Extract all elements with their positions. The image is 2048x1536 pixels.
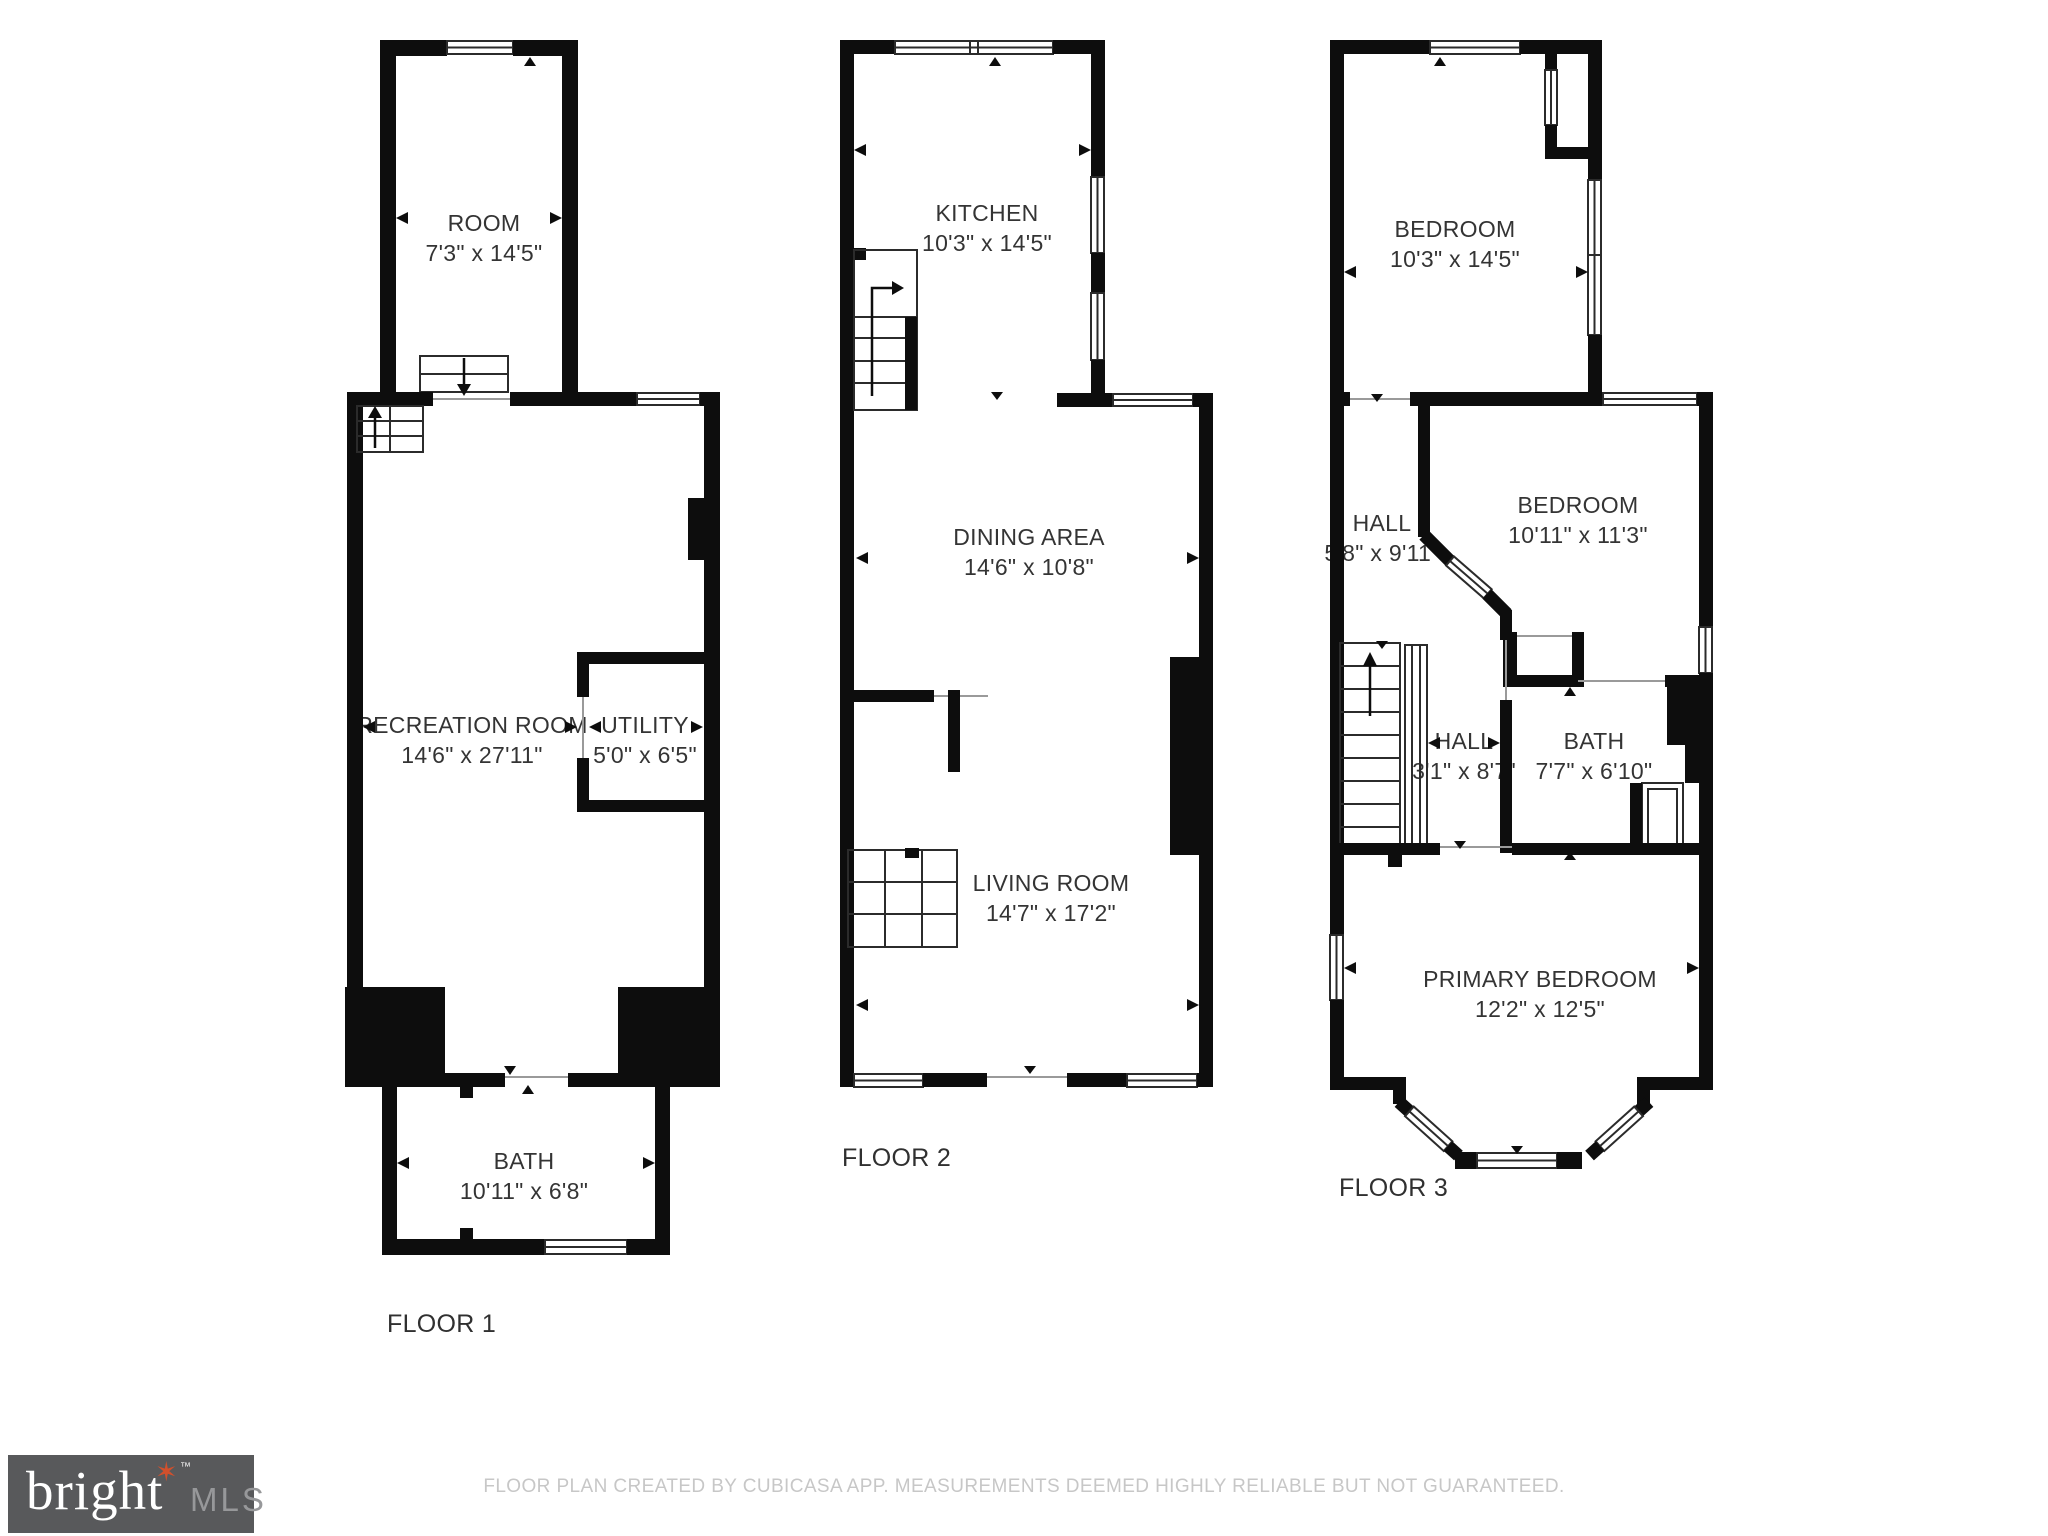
bright-mls-logo: bright ✶ ™ MLS (8, 1455, 254, 1533)
window (1091, 293, 1104, 360)
stairs-icon (420, 356, 508, 396)
logo-inner: bright ✶ ™ MLS (8, 1455, 254, 1533)
window (1127, 1074, 1197, 1087)
window (854, 1074, 923, 1087)
window (1477, 1153, 1557, 1168)
window (1699, 627, 1712, 673)
window (1430, 41, 1520, 54)
window (1330, 935, 1343, 1000)
floor-plan-page: ROOM 7'3" x 14'5" RECREATION ROOM 14'6" … (0, 0, 2048, 1536)
disclaimer-text: FLOOR PLAN CREATED BY CUBICASA APP. MEAS… (483, 1476, 1564, 1498)
floor1-plan (345, 40, 720, 1255)
window (545, 1240, 627, 1254)
stairs-icon (357, 406, 423, 452)
window (1091, 177, 1104, 253)
window (1545, 70, 1557, 125)
window (1588, 180, 1601, 335)
floor3-plan (1330, 40, 1713, 1169)
door (1446, 556, 1492, 598)
window (1113, 394, 1193, 406)
bath-walls (382, 1087, 670, 1255)
utility-room-walls (577, 652, 704, 812)
floor2-plan (840, 40, 1213, 1087)
star-icon: ✶ (155, 1457, 178, 1488)
stairs-icon (1340, 641, 1427, 850)
floor-plan-canvas (0, 0, 2048, 1536)
window (637, 393, 700, 405)
fireplace (1170, 657, 1199, 855)
window (895, 41, 1053, 54)
trademark-symbol: ™ (180, 1461, 191, 1473)
window (447, 41, 513, 54)
window (1603, 393, 1697, 405)
logo-suffix-text: MLS (190, 1481, 267, 1519)
logo-brand-text: bright (26, 1459, 163, 1522)
shower (1642, 783, 1683, 853)
stairs-icon (848, 848, 957, 947)
bay-window (1330, 1077, 1713, 1169)
